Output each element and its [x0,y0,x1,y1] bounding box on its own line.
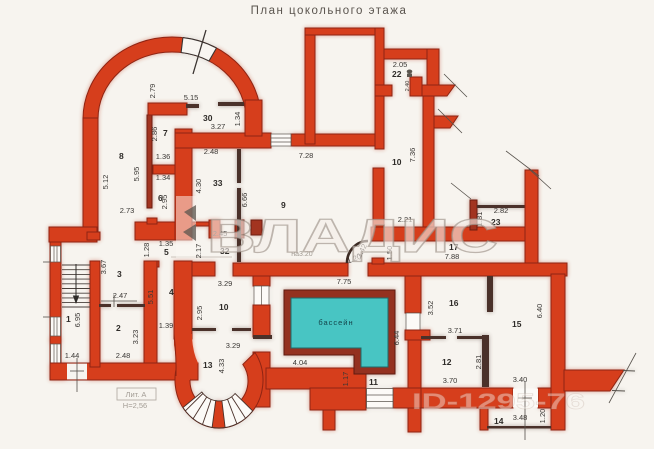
svg-text:ВЛАДИС: ВЛАДИС [207,209,498,262]
svg-text:2.79: 2.79 [148,84,157,99]
svg-text:8: 8 [119,151,124,161]
svg-text:1.36: 1.36 [156,152,171,161]
svg-text:5.51: 5.51 [146,290,155,305]
svg-text:16: 16 [449,298,459,308]
svg-text:3.71: 3.71 [448,326,463,335]
svg-text:2.81: 2.81 [474,355,483,370]
svg-text:3: 3 [117,269,122,279]
svg-text:3.29: 3.29 [226,341,241,350]
svg-text:7: 7 [163,128,168,138]
svg-text:13: 13 [203,360,213,370]
svg-text:2.48: 2.48 [116,351,131,360]
svg-text:6.40: 6.40 [535,304,544,319]
svg-text:1.34: 1.34 [233,112,242,127]
svg-text:2.95: 2.95 [160,195,169,210]
svg-text:12: 12 [442,357,452,367]
svg-text:11: 11 [369,377,378,387]
svg-text:3.29: 3.29 [218,279,233,288]
svg-text:22: 22 [392,69,402,79]
svg-text:3.23: 3.23 [131,330,140,345]
svg-text:2.48: 2.48 [204,147,219,156]
svg-text:14: 14 [494,416,504,426]
svg-text:Лит. А: Лит. А [126,390,147,399]
svg-text:6.44: 6.44 [392,331,401,346]
svg-text:10: 10 [219,302,229,312]
svg-text:2.40: 2.40 [405,81,411,92]
svg-text:4: 4 [169,287,174,297]
svg-text:ID-1295-76: ID-1295-76 [412,389,585,414]
svg-text:5: 5 [164,247,169,257]
svg-text:1.28: 1.28 [142,243,151,258]
svg-text:15: 15 [512,319,522,329]
svg-text:5.95: 5.95 [132,167,141,182]
svg-text:4.30: 4.30 [194,179,203,194]
svg-text:1.39: 1.39 [159,321,174,330]
svg-text:1.17: 1.17 [341,372,350,387]
svg-text:1: 1 [66,314,71,324]
svg-text:3.52: 3.52 [426,301,435,316]
svg-text:2: 2 [116,323,121,333]
svg-text:2.73: 2.73 [120,206,135,215]
svg-text:10: 10 [392,157,402,167]
svg-text:3.27: 3.27 [211,122,226,131]
svg-text:3.70: 3.70 [443,376,458,385]
svg-text:3.67: 3.67 [99,260,108,275]
svg-text:33: 33 [213,178,223,188]
svg-text:4.33: 4.33 [217,359,226,374]
svg-text:План цокольного этажа: План цокольного этажа [251,5,408,17]
svg-text:7.28: 7.28 [299,151,314,160]
svg-text:2.86: 2.86 [150,127,159,142]
svg-text:Н=2,56: Н=2,56 [123,401,147,410]
svg-text:2.47: 2.47 [113,291,128,300]
svg-text:2.05: 2.05 [393,60,408,69]
svg-text:6.95: 6.95 [73,313,82,328]
svg-text:7.36: 7.36 [408,148,417,163]
svg-text:5.15: 5.15 [184,93,199,102]
svg-text:6.66: 6.66 [240,193,249,208]
svg-text:бассейн: бассейн [318,318,353,327]
svg-text:2.95: 2.95 [195,306,204,321]
svg-text:5.12: 5.12 [101,175,110,190]
svg-text:1.34: 1.34 [156,173,171,182]
svg-text:4.04: 4.04 [293,358,308,367]
svg-text:7.75: 7.75 [337,277,352,286]
